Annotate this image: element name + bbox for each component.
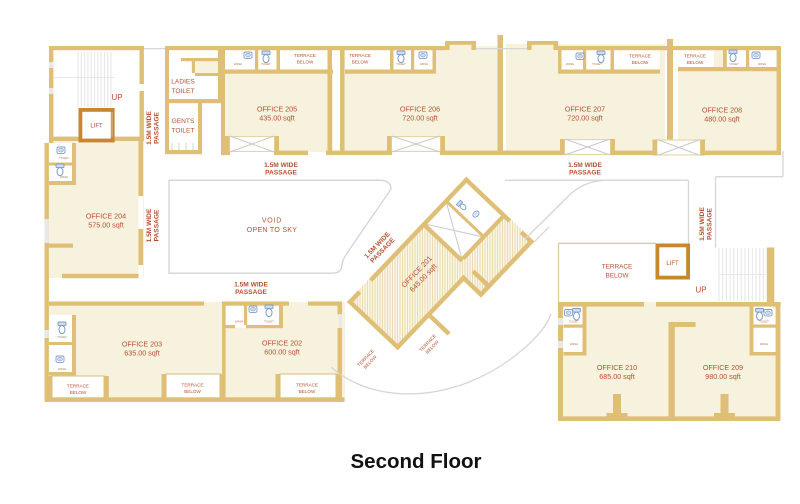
svg-text:PASSAGE: PASSAGE (265, 170, 297, 177)
svg-text:TOILET: TOILET (396, 62, 406, 66)
svg-text:WASH: WASH (60, 175, 68, 179)
svg-text:TOILET: TOILET (264, 320, 274, 324)
svg-text:TERRACE: TERRACE (629, 54, 651, 59)
svg-text:TERRACE: TERRACE (296, 383, 318, 388)
svg-text:OFFICE 207: OFFICE 207 (565, 105, 605, 114)
svg-text:OFFICE 203: OFFICE 203 (122, 340, 162, 349)
svg-text:BELOW: BELOW (632, 60, 649, 65)
svg-text:UP: UP (111, 93, 122, 102)
svg-text:TERRACE: TERRACE (67, 384, 89, 389)
svg-text:LIFT: LIFT (666, 261, 679, 267)
svg-text:OFFICE 206: OFFICE 206 (400, 105, 440, 114)
svg-text:LADIES: LADIES (171, 79, 195, 86)
svg-text:WASH: WASH (420, 62, 428, 66)
svg-text:BELOW: BELOW (299, 389, 316, 394)
svg-text:OFFICE 208: OFFICE 208 (702, 106, 742, 115)
svg-text:575.00 sqft: 575.00 sqft (88, 221, 124, 230)
svg-text:BELOW: BELOW (687, 60, 704, 65)
svg-text:WASH: WASH (570, 342, 578, 346)
svg-text:BELOW: BELOW (184, 389, 201, 394)
svg-text:VOID: VOID (262, 218, 282, 225)
svg-text:635.00 sqft: 635.00 sqft (124, 349, 160, 358)
svg-text:TERRACE: TERRACE (602, 264, 633, 271)
svg-text:1.5M WIDE: 1.5M WIDE (146, 208, 153, 242)
svg-text:TOILET: TOILET (729, 62, 739, 66)
svg-text:OFFICE 205: OFFICE 205 (257, 105, 297, 114)
svg-text:600.00 sqft: 600.00 sqft (264, 348, 300, 357)
svg-text:435.00 sqft: 435.00 sqft (259, 114, 295, 123)
svg-text:TERRACE: TERRACE (182, 383, 204, 388)
svg-text:WASH: WASH (760, 342, 768, 346)
svg-text:1.5M WIDE: 1.5M WIDE (699, 207, 706, 241)
svg-text:PASSAGE: PASSAGE (154, 209, 161, 241)
svg-text:TOILET: TOILET (172, 88, 195, 95)
svg-text:720.00 sqft: 720.00 sqft (402, 114, 438, 123)
svg-text:PASSAGE: PASSAGE (235, 289, 267, 296)
svg-text:BELOW: BELOW (352, 60, 369, 65)
svg-text:TOILET: TOILET (57, 335, 67, 339)
svg-text:BELOW: BELOW (297, 60, 314, 65)
svg-text:TERRACE: TERRACE (294, 53, 316, 58)
svg-text:BELOW: BELOW (70, 390, 87, 395)
svg-text:720.00 sqft: 720.00 sqft (567, 114, 603, 123)
svg-text:980.00 sqft: 980.00 sqft (705, 372, 741, 381)
svg-text:TOILET: TOILET (261, 62, 271, 66)
svg-text:TOILET: TOILET (759, 320, 769, 324)
svg-text:BELOW: BELOW (605, 273, 629, 280)
svg-text:TERRACE: TERRACE (684, 54, 706, 59)
svg-text:OFFICE 202: OFFICE 202 (262, 339, 302, 348)
svg-text:OFFICE 204: OFFICE 204 (86, 212, 126, 221)
svg-text:WASH: WASH (566, 62, 574, 66)
svg-text:TERRACE: TERRACE (349, 53, 371, 58)
svg-text:TOILET: TOILET (59, 156, 69, 160)
svg-text:OPEN TO SKY: OPEN TO SKY (247, 227, 298, 234)
svg-text:1.5M WIDE: 1.5M WIDE (264, 162, 298, 169)
svg-text:PASSAGE: PASSAGE (154, 112, 161, 144)
svg-text:WASH: WASH (758, 62, 766, 66)
svg-text:OFFICE 210: OFFICE 210 (597, 363, 637, 372)
svg-text:1.5M WIDE: 1.5M WIDE (568, 162, 602, 169)
svg-text:OFFICE 209: OFFICE 209 (703, 363, 743, 372)
svg-text:TOILET: TOILET (172, 128, 195, 135)
svg-text:UP: UP (695, 286, 706, 295)
svg-text:Second Floor: Second Floor (351, 450, 482, 473)
svg-text:TOILET: TOILET (592, 62, 602, 66)
svg-text:1.5M WIDE: 1.5M WIDE (146, 111, 153, 145)
svg-text:PASSAGE: PASSAGE (569, 170, 601, 177)
svg-text:TOILET: TOILET (569, 320, 579, 324)
svg-text:GENTS: GENTS (172, 118, 195, 125)
svg-text:1.5M WIDE: 1.5M WIDE (234, 282, 268, 289)
svg-text:WASH: WASH (58, 367, 66, 371)
svg-text:WASH: WASH (234, 62, 242, 66)
svg-text:685.00 sqft: 685.00 sqft (599, 372, 635, 381)
svg-text:PASSAGE: PASSAGE (707, 208, 714, 240)
svg-text:480.00 sqft: 480.00 sqft (704, 115, 740, 124)
svg-text:LIFT: LIFT (90, 124, 103, 130)
svg-text:WASH: WASH (235, 320, 243, 324)
